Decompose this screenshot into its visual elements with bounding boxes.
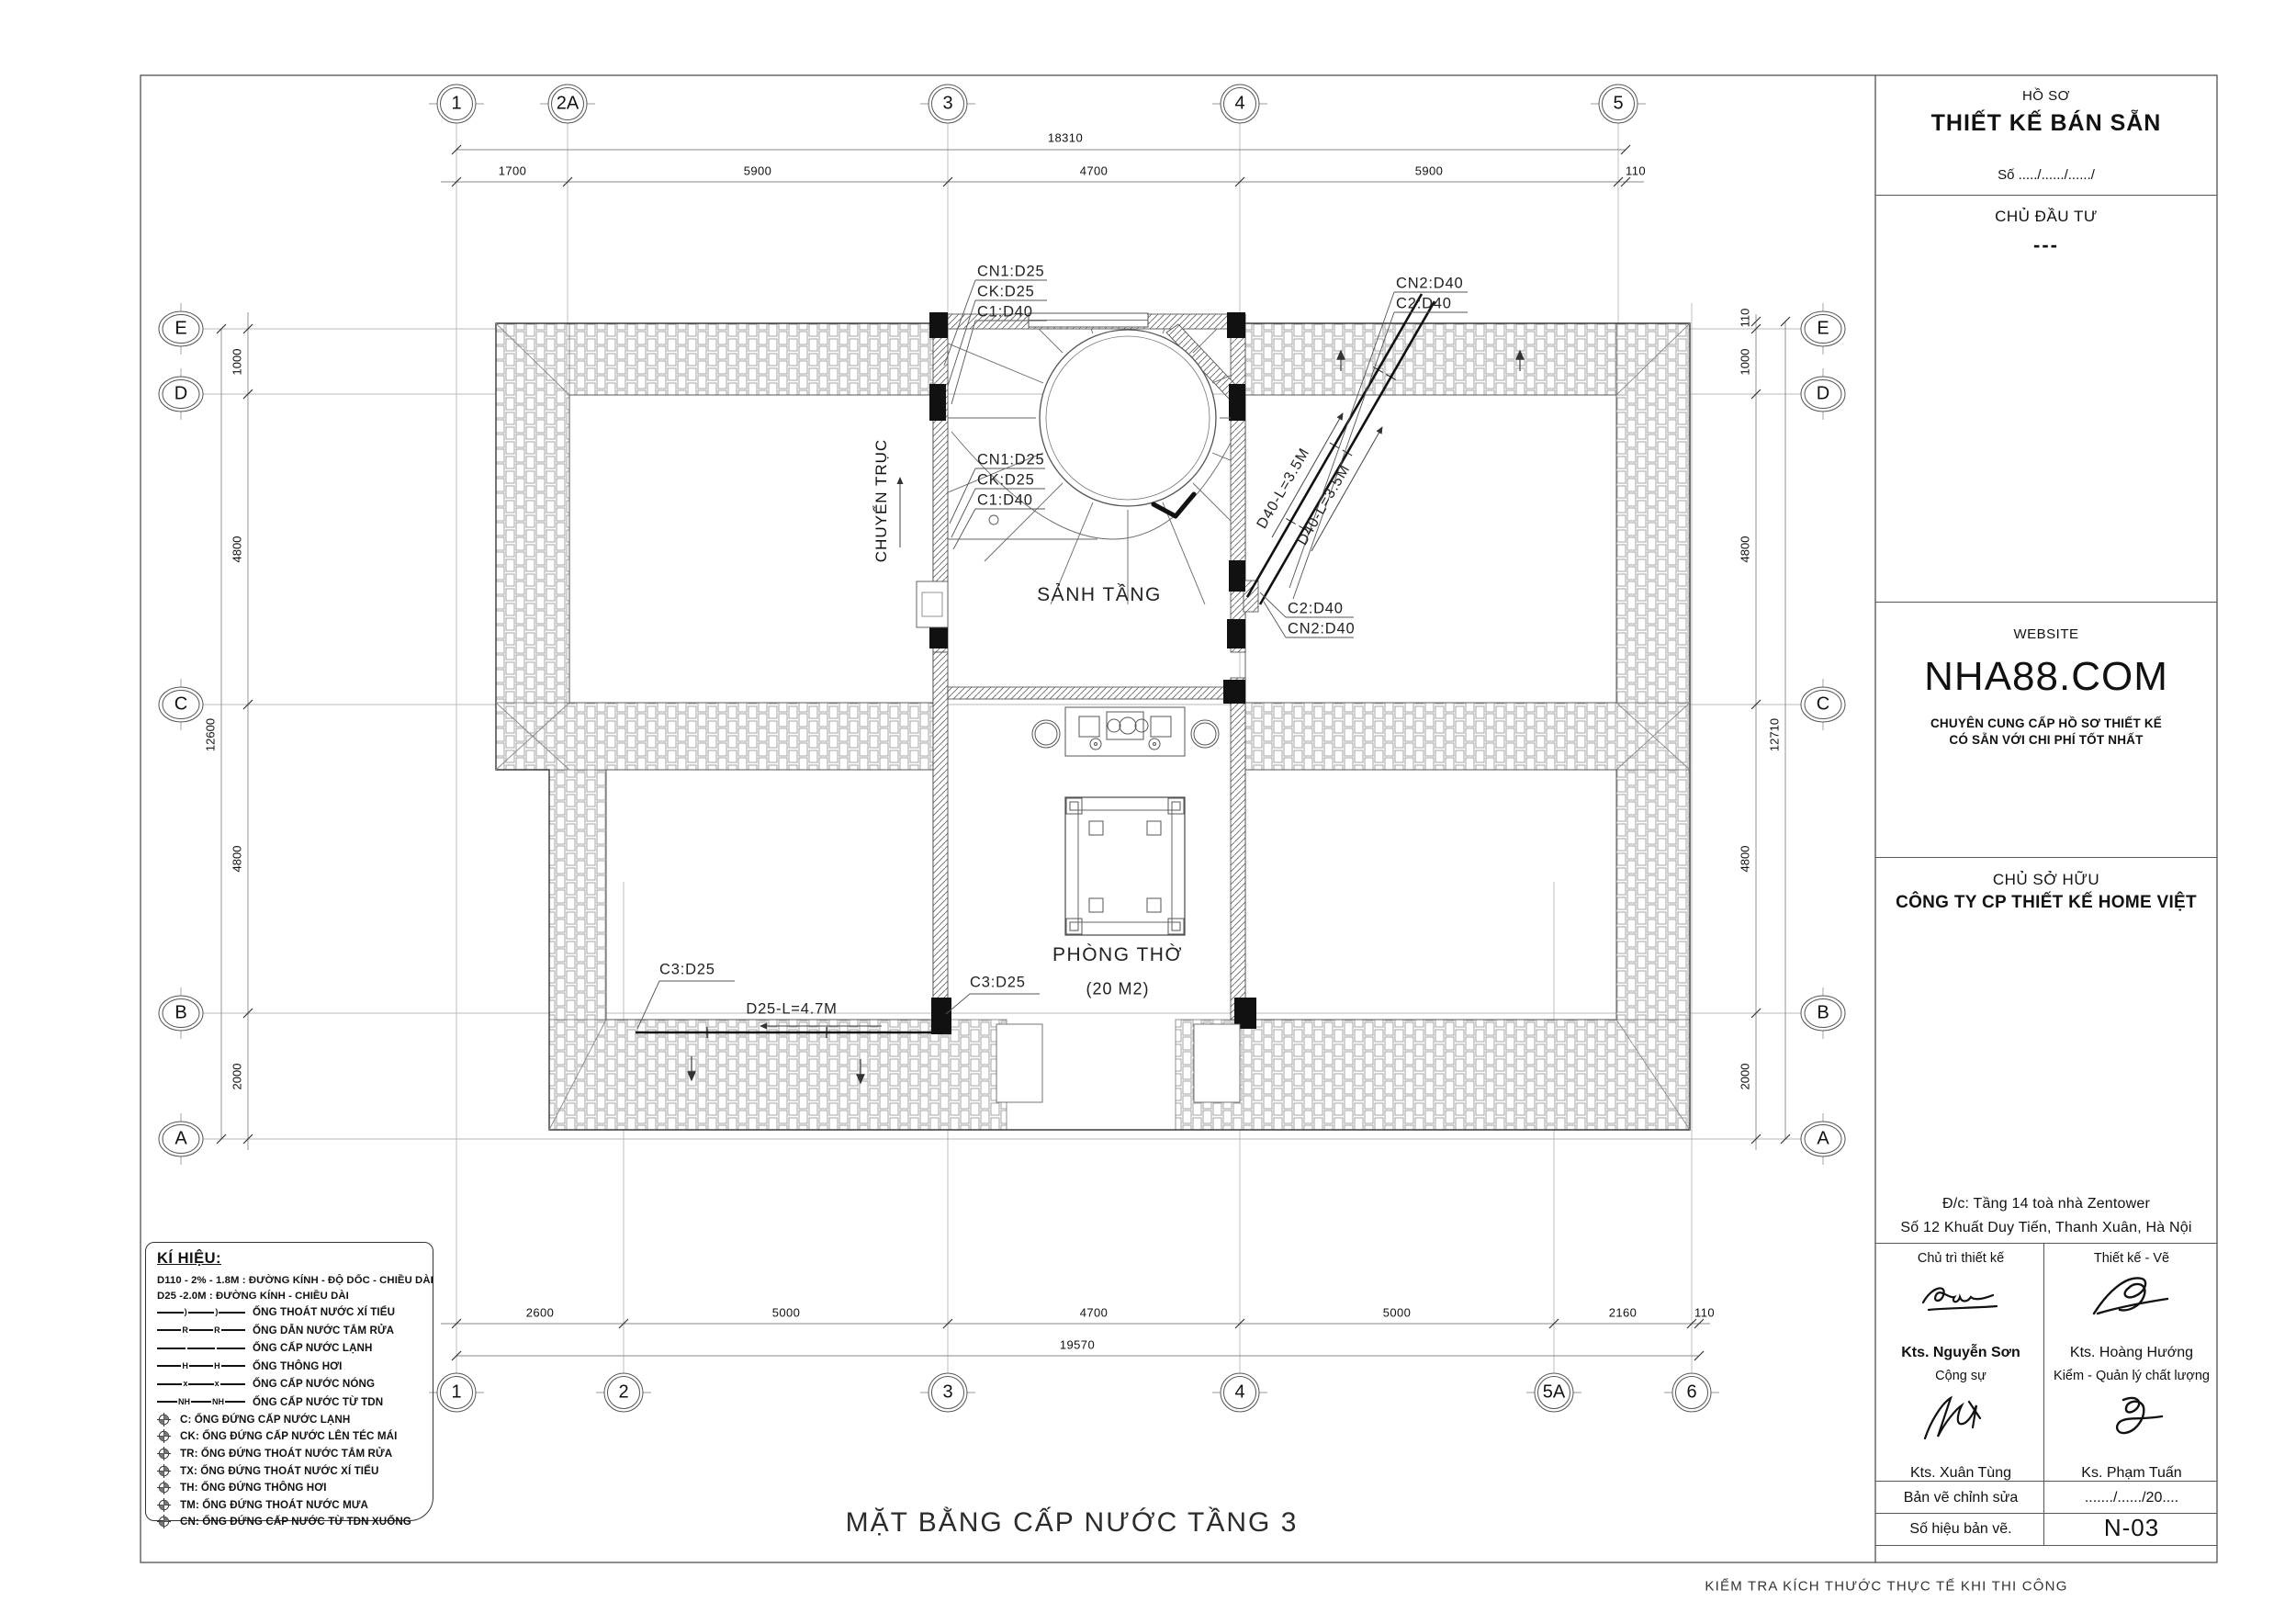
- legend-line-item: )) ỐNG THOÁT NƯỚC XÍ TIỂU: [157, 1303, 423, 1322]
- pipe-symbol: )): [157, 1308, 245, 1316]
- legend-line-label: ỐNG CẤP NƯỚC NÓNG: [253, 1378, 375, 1390]
- grid-bubble-bottom: 1: [451, 1382, 461, 1404]
- legend-box: KÍ HIỆU: D110 - 2% - 1.8M : ĐƯỜNG KÍNH -…: [145, 1242, 433, 1521]
- address-line: Đ/c: Tầng 14 toà nhà Zentower: [1875, 1196, 2217, 1212]
- legend-title: KÍ HIỆU:: [157, 1250, 423, 1268]
- riser-label: CN1:D25: [977, 264, 1044, 281]
- grid-bubble-right: A: [1817, 1129, 1829, 1150]
- room-label-hall: SẢNH TẦNG: [1037, 584, 1162, 606]
- dim-left: 1000: [231, 349, 244, 376]
- legend-line-item: HH ỐNG THÔNG HƠI: [157, 1358, 423, 1376]
- grid-bubble-bottom: 3: [942, 1382, 952, 1404]
- pipe-marker: R: [213, 1326, 221, 1335]
- legend-riser-label: CK: ỐNG ĐỨNG CẤP NƯỚC LÊN TÉC MÁI: [180, 1430, 397, 1442]
- drawing-title: MẶT BẰNG CẤP NƯỚC TẦNG 3: [846, 1507, 1299, 1539]
- legend-line-item: RR ỐNG DẪN NƯỚC TẮM RỬA: [157, 1322, 423, 1340]
- sign-role: Chủ trì thiết kế: [1875, 1251, 2046, 1266]
- riser-icon: [157, 1447, 171, 1460]
- website-domain: NHA88.COM: [1875, 654, 2217, 700]
- address-line: Số 12 Khuất Duy Tiến, Thanh Xuân, Hà Nội: [1875, 1220, 2217, 1236]
- riser-label: C2:D40: [1396, 296, 1452, 313]
- legend-riser-item: CN: ỐNG ĐỨNG CẤP NƯỚC TỪ TDN XUỐNG: [157, 1514, 423, 1531]
- dim-top: 4700: [1080, 164, 1109, 178]
- pipe-marker: x: [182, 1380, 188, 1388]
- pipe-symbol: RR: [157, 1326, 245, 1335]
- signature: [2096, 1391, 2180, 1444]
- legend-riser-label: TM: ỐNG ĐỨNG THOÁT NƯỚC MƯA: [180, 1499, 368, 1511]
- legend-note: D25 -2.0M : ĐƯỜNG KÍNH - CHIỀU DÀI: [157, 1289, 423, 1304]
- riser-label: C1:D40: [977, 304, 1033, 321]
- legend-riser-label: TR: ỐNG ĐỨNG THOÁT NƯỚC TẮM RỬA: [180, 1448, 392, 1460]
- grid-bubble-top: 3: [942, 94, 952, 115]
- pipe-symbol: HH: [157, 1362, 245, 1370]
- grid-bubble-left: B: [174, 1003, 186, 1024]
- dim-bottom: 2160: [1609, 1306, 1638, 1320]
- legend-line-label: ỐNG THÔNG HƠI: [253, 1360, 343, 1372]
- pipe-marker: R: [181, 1326, 189, 1335]
- grid-bubble-top: 5: [1613, 94, 1623, 115]
- dim-top: 110: [1626, 164, 1646, 178]
- dim-top: 5900: [744, 164, 772, 178]
- revision-value: ......./....../20....: [2046, 1490, 2217, 1506]
- investor-label: CHỦ ĐẦU TƯ: [1875, 208, 2217, 226]
- website-slogan: CHUYÊN CUNG CẤP HỒ SƠ THIẾT KẾ: [1875, 716, 2217, 730]
- dim-bottom: 5000: [772, 1306, 801, 1320]
- dim-bottom: 5000: [1383, 1306, 1412, 1320]
- riser-icon: [157, 1515, 171, 1528]
- dim-overall-bottom: 19570: [1060, 1338, 1095, 1352]
- website-label: WEBSITE: [1875, 626, 2217, 642]
- legend-riser-item: TM: ỐNG ĐỨNG THOÁT NƯỚC MƯA: [157, 1496, 423, 1514]
- riser-icon: [157, 1498, 171, 1512]
- signature: [2088, 1269, 2173, 1321]
- riser-label: C3:D25: [659, 962, 715, 979]
- room-area: (20 M2): [1086, 980, 1149, 999]
- room-label-worship: PHÒNG THỜ: [1052, 944, 1183, 966]
- grid-bubble-left: E: [174, 319, 186, 340]
- axis-note: CHUYỂN TRỤC: [872, 439, 891, 562]
- sign-role: Thiết kế - Vẽ: [2046, 1251, 2217, 1266]
- grid-bubble-right: E: [1817, 319, 1829, 340]
- riser-icon: [157, 1413, 171, 1427]
- grid-bubble-right: C: [1817, 694, 1829, 716]
- dim-right: 2000: [1739, 1064, 1752, 1090]
- grid-bubble-top: 4: [1234, 94, 1244, 115]
- legend-line-item: ỐNG CẤP NƯỚC LẠNH: [157, 1339, 423, 1358]
- legend-riser-label: CN: ỐNG ĐỨNG CẤP NƯỚC TỪ TDN XUỐNG: [180, 1516, 411, 1528]
- legend-line-label: ỐNG CẤP NƯỚC LẠNH: [253, 1342, 373, 1354]
- grid-bubble-right: D: [1817, 384, 1829, 405]
- pipe-marker: NH: [211, 1398, 225, 1406]
- sign-name: Kts. Xuân Tùng: [1875, 1465, 2046, 1482]
- grid-bubble-bottom: 5A: [1543, 1382, 1565, 1404]
- grid-bubble-bottom: 2: [618, 1382, 628, 1404]
- riser-label: CN1:D25: [977, 452, 1044, 469]
- riser-icon: [157, 1481, 171, 1494]
- dim-right: 4800: [1739, 536, 1752, 563]
- dim-overall-top: 18310: [1048, 131, 1083, 145]
- grid-bubble-bottom: 6: [1686, 1382, 1696, 1404]
- riser-icon: [157, 1464, 171, 1478]
- grid-bubble-bottom: 4: [1234, 1382, 1244, 1404]
- riser-label: CK:D25: [977, 472, 1035, 490]
- dim-top: 1700: [499, 164, 527, 178]
- sheet-number-label: Số hiệu bản vẽ.: [1875, 1521, 2046, 1538]
- legend-riser-item: TH: ỐNG ĐỨNG THÔNG HƠI: [157, 1479, 423, 1496]
- dossier-label: HỒ SƠ: [1875, 88, 2217, 104]
- investor-value: ---: [1875, 233, 2217, 257]
- dossier-number: Số ...../....../....../: [1875, 167, 2217, 183]
- legend-riser-item: CK: ỐNG ĐỨNG CẤP NƯỚC LÊN TÉC MÁI: [157, 1428, 423, 1446]
- legend-line-label: ỐNG DẪN NƯỚC TẮM RỬA: [253, 1325, 394, 1336]
- legend-riser-item: TX: ỐNG ĐỨNG THOÁT NƯỚC XÍ TIỂU: [157, 1462, 423, 1480]
- riser-label: CN2:D40: [1288, 621, 1355, 638]
- riser-label: CK:D25: [977, 284, 1035, 301]
- sign-name: Kts. Hoàng Hướng: [2046, 1345, 2217, 1361]
- dim-left: 4800: [231, 846, 244, 873]
- legend-note: D110 - 2% - 1.8M : ĐƯỜNG KÍNH - ĐỘ DỐC -…: [157, 1273, 423, 1289]
- legend-riser-label: TH: ỐNG ĐỨNG THÔNG HƠI: [180, 1482, 327, 1494]
- legend-line-label: ỐNG THOÁT NƯỚC XÍ TIỂU: [253, 1306, 395, 1318]
- pipe-symbol: [157, 1348, 245, 1349]
- pipe-marker: x: [214, 1380, 220, 1388]
- dim-overall-left: 12600: [204, 718, 218, 751]
- legend-riser-item: C: ỐNG ĐỨNG CẤP NƯỚC LẠNH: [157, 1411, 423, 1428]
- website-slogan: CÓ SẴN VỚI CHI PHÍ TỐT NHẤT: [1875, 733, 2217, 747]
- grid-bubble-left: D: [174, 384, 187, 405]
- riser-label: C3:D25: [970, 975, 1026, 992]
- pipe-symbol: NHNH: [157, 1398, 245, 1406]
- pipe-label: D25-L=4.7M: [746, 1001, 837, 1019]
- dim-bottom: 4700: [1080, 1306, 1109, 1320]
- pipe-marker: H: [213, 1362, 221, 1370]
- dossier-title: THIẾT KẾ BÁN SẴN: [1875, 110, 2217, 137]
- drawing-sheet: 1 2A 3 4 5 1 2 3 4 5A 6 E D C B A E D C …: [0, 0, 2296, 1624]
- grid-bubble-left: C: [174, 694, 187, 716]
- signature: [1919, 1275, 2004, 1321]
- bottom-note: KIỂM TRA KÍCH THƯỚC THỰC TẾ KHI THI CÔNG: [1705, 1579, 2067, 1595]
- dim-left: 2000: [231, 1064, 244, 1090]
- legend-riser-item: TR: ỐNG ĐỨNG THOÁT NƯỚC TẮM RỬA: [157, 1445, 423, 1462]
- dim-overall-right: 12710: [1768, 718, 1782, 751]
- riser-icon: [157, 1429, 171, 1443]
- sheet-number-value: N-03: [2046, 1514, 2217, 1542]
- dim-right: 110: [1739, 309, 1752, 328]
- dim-top: 5900: [1415, 164, 1444, 178]
- riser-label: C1:D40: [977, 492, 1033, 510]
- pipe-symbol: xx: [157, 1380, 245, 1388]
- signature: [1919, 1391, 2004, 1444]
- grid-bubble-top: 1: [451, 94, 461, 115]
- pipe-marker: NH: [177, 1398, 191, 1406]
- owner-label: CHỦ SỞ HỮU: [1875, 871, 2217, 889]
- legend-riser-label: C: ỐNG ĐỨNG CẤP NƯỚC LẠNH: [180, 1414, 350, 1426]
- dim-bottom: 110: [1694, 1306, 1715, 1320]
- legend-riser-label: TX: ỐNG ĐỨNG THOÁT NƯỚC XÍ TIỂU: [180, 1465, 378, 1477]
- dim-bottom: 2600: [526, 1306, 555, 1320]
- sign-role: Kiểm - Quản lý chất lượng: [2046, 1369, 2217, 1383]
- legend-line-item: xx ỐNG CẤP NƯỚC NÓNG: [157, 1375, 423, 1393]
- dim-right: 4800: [1739, 846, 1752, 873]
- dim-left: 4800: [231, 536, 244, 563]
- pipe-marker: H: [181, 1362, 189, 1370]
- owner-company: CÔNG TY CP THIẾT KẾ HOME VIỆT: [1875, 893, 2217, 913]
- revision-label: Bản vẽ chỉnh sửa: [1875, 1490, 2046, 1506]
- grid-bubble-top: 2A: [557, 94, 579, 115]
- sign-role: Cộng sự: [1875, 1369, 2046, 1383]
- sign-name: Kts. Nguyễn Sơn: [1875, 1345, 2046, 1361]
- sign-name: Ks. Phạm Tuấn: [2046, 1465, 2217, 1482]
- legend-line-item: NHNH ỐNG CẤP NƯỚC TỪ TDN: [157, 1393, 423, 1412]
- legend-line-label: ỐNG CẤP NƯỚC TỪ TDN: [253, 1396, 383, 1408]
- riser-label: CN2:D40: [1396, 276, 1463, 293]
- title-block: HỒ SƠ THIẾT KẾ BÁN SẴN Số ...../....../.…: [1875, 75, 2217, 1545]
- dim-right: 1000: [1739, 349, 1752, 376]
- grid-bubble-left: A: [174, 1129, 186, 1150]
- riser-label: C2:D40: [1288, 601, 1344, 618]
- grid-bubble-right: B: [1817, 1003, 1829, 1024]
